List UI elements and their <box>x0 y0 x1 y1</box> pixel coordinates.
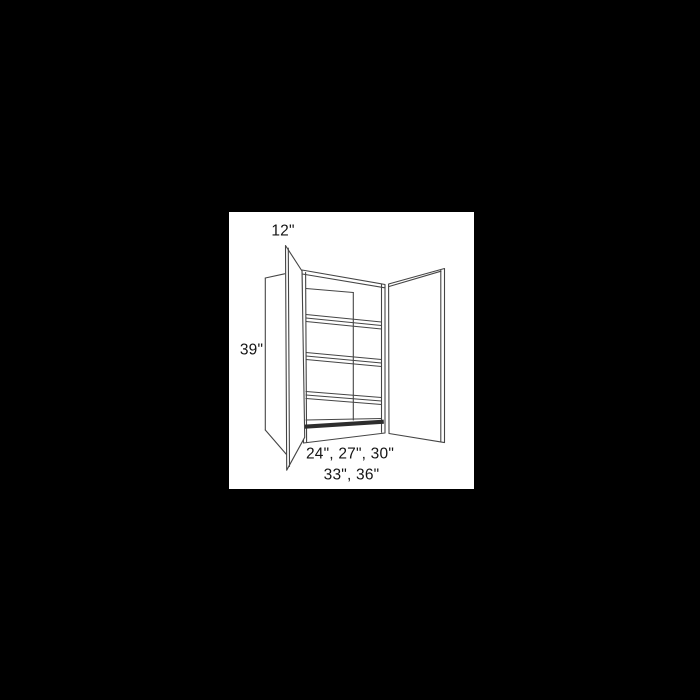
depth-dimension-label: 12" <box>271 223 294 239</box>
height-dimension-label: 39" <box>240 342 263 358</box>
left-door <box>286 246 305 471</box>
page-background: 12" 39" 24", 27", 30" 33", 36" <box>0 0 700 700</box>
drawing-canvas: 12" 39" 24", 27", 30" 33", 36" <box>229 212 474 489</box>
cabinet-body <box>302 270 385 443</box>
right-door <box>389 269 445 443</box>
width-options-label-line1: 24", 27", 30" <box>306 446 394 462</box>
cabinet-side-panel <box>265 274 286 455</box>
width-options-label-line2: 33", 36" <box>324 467 380 483</box>
